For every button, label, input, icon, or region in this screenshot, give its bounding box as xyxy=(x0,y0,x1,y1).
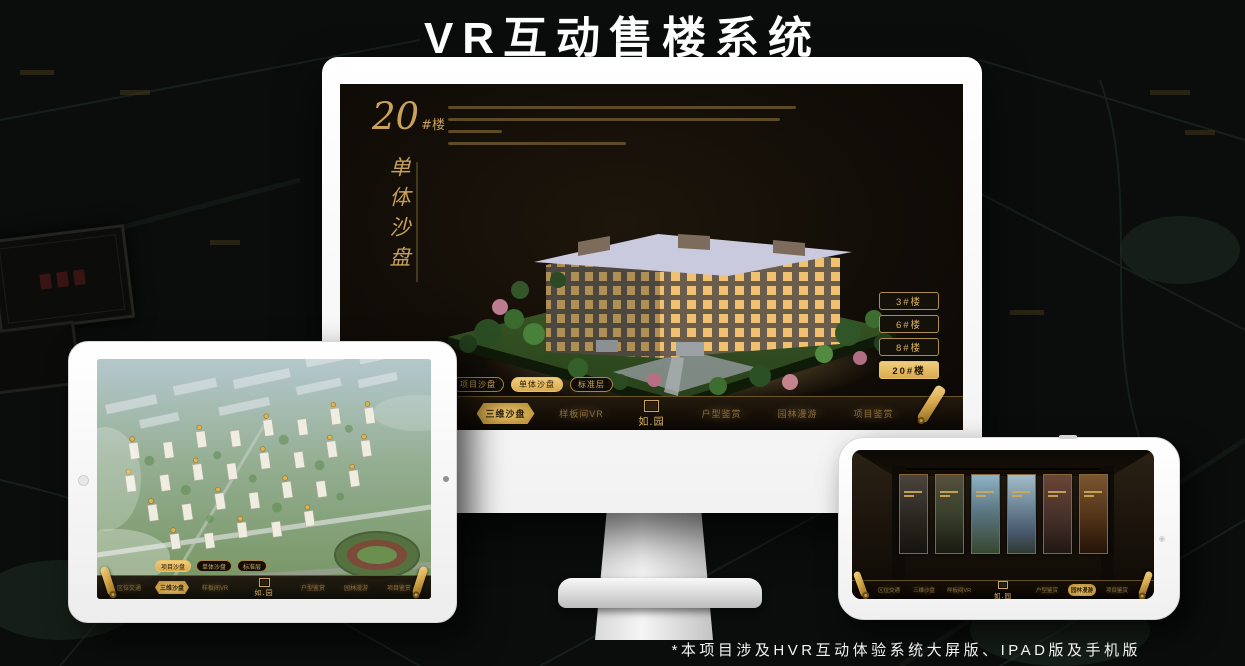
scene-panel-landscape[interactable] xyxy=(971,474,1000,554)
monitor-stand-neck xyxy=(595,510,713,640)
phone-power-button[interactable] xyxy=(1059,435,1077,439)
building-3d-render xyxy=(428,130,910,402)
plaque-seal-marks xyxy=(0,234,125,324)
tablet-subtabs: 项目沙盘 单体沙盘 标准层 xyxy=(155,560,267,572)
phone-bottom-nav: 区位交通 三维沙盘 样板间VR 如.园 户型鉴赏 园林漫游 项目鉴赏 xyxy=(852,580,1154,599)
phone-nav-item-3d-sandtable[interactable]: 三维沙盘 xyxy=(910,584,938,596)
subtab-standard-floor[interactable]: 标准层 xyxy=(570,377,613,392)
monitor-stand-foot xyxy=(558,578,762,608)
scene-panel-garden[interactable] xyxy=(935,474,964,554)
tablet-brand-emblem-icon xyxy=(259,578,270,587)
tablet-screen: 项目沙盘 单体沙盘 标准层 区位交通 三维沙盘 样板间VR 如.园 户型鉴赏 园… xyxy=(97,359,431,599)
scene-panel-building[interactable] xyxy=(1007,474,1036,554)
phone-nav-item-showroom-vr[interactable]: 样板间VR xyxy=(945,584,973,596)
phone-nav-item-location[interactable]: 区位交通 xyxy=(875,584,903,596)
background-plaque xyxy=(0,224,135,334)
tablet-nav-item-project-view[interactable]: 项目鉴赏 xyxy=(382,581,416,594)
phone-camera-icon xyxy=(1159,536,1165,542)
tablet-nav-item-floorplan[interactable]: 户型鉴赏 xyxy=(296,581,330,594)
tablet-nav-item-showroom-vr[interactable]: 样板间VR xyxy=(198,581,232,594)
phone-nav-item-floorplan[interactable]: 户型鉴赏 xyxy=(1033,584,1061,596)
phone-brand-emblem-icon xyxy=(998,581,1008,589)
tablet-bottom-nav: 区位交通 三维沙盘 样板间VR 如.园 户型鉴赏 园林漫游 项目鉴赏 xyxy=(97,575,431,599)
phone-nav-item-garden-roam[interactable]: 园林漫游 xyxy=(1068,584,1096,596)
tablet-nav-item-location[interactable]: 区位交通 xyxy=(112,581,146,594)
scene-panel-autumn[interactable] xyxy=(1043,474,1072,554)
nav-item-showroom-vr[interactable]: 样板间VR xyxy=(553,403,611,424)
scene-gallery xyxy=(852,474,1154,554)
tower-button-group: 3#楼 6#楼 8#楼 20#楼 xyxy=(879,292,939,379)
nav-item-garden-roam[interactable]: 园林漫游 xyxy=(769,403,827,424)
tower-button-3[interactable]: 3#楼 xyxy=(879,292,939,310)
page-title: VR互动售楼系统 xyxy=(0,2,1245,66)
tablet-brand-logo: 如.园 xyxy=(241,578,287,598)
tablet-subtab-project-sandtable[interactable]: 项目沙盘 xyxy=(155,560,191,572)
tower-button-8[interactable]: 8#楼 xyxy=(879,338,939,356)
brand-logo-text: 如.园 xyxy=(638,413,664,428)
footnote-text: *本项目涉及HVR互动体验系统大屏版、IPAD版及手机版 xyxy=(672,639,1141,660)
tablet-brand-logo-text: 如.园 xyxy=(254,588,273,598)
tablet-subtab-standard-floor[interactable]: 标准层 xyxy=(237,560,267,572)
scene-panel-courtyard[interactable] xyxy=(899,474,928,554)
tower-button-20[interactable]: 20#楼 xyxy=(879,361,939,379)
subtab-project-sandtable[interactable]: 项目沙盘 xyxy=(452,377,504,392)
tablet-camera-icon xyxy=(78,475,89,486)
sandtable-subtabs: 项目沙盘 单体沙盘 标准层 xyxy=(452,377,613,392)
phone-brand-logo-text: 如.园 xyxy=(994,590,1012,600)
phone-screen: 区位交通 三维沙盘 样板间VR 如.园 户型鉴赏 园林漫游 项目鉴赏 xyxy=(852,450,1154,599)
decorative-divider xyxy=(416,162,418,282)
brand-logo: 如.园 xyxy=(629,400,675,428)
brand-emblem-icon xyxy=(644,400,659,412)
tablet: 项目沙盘 单体沙盘 标准层 区位交通 三维沙盘 样板间VR 如.园 户型鉴赏 园… xyxy=(68,341,457,623)
phone-nav-item-project-view[interactable]: 项目鉴赏 xyxy=(1103,584,1131,596)
nav-item-project-view[interactable]: 项目鉴赏 xyxy=(845,403,903,424)
building-subtitle-vertical: 单体沙盘 xyxy=(384,156,414,346)
tablet-home-button[interactable] xyxy=(443,476,449,482)
building-number: 20 xyxy=(372,95,419,138)
nav-item-floorplan[interactable]: 户型鉴赏 xyxy=(693,403,751,424)
scene-panel-interior[interactable] xyxy=(1079,474,1108,554)
tablet-nav-item-garden-roam[interactable]: 园林漫游 xyxy=(339,581,373,594)
tablet-subtab-single-sandtable[interactable]: 单体沙盘 xyxy=(196,560,232,572)
smartphone: 区位交通 三维沙盘 样板间VR 如.园 户型鉴赏 园林漫游 项目鉴赏 xyxy=(838,437,1180,620)
phone-brand-logo: 如.园 xyxy=(980,581,1026,600)
tower-button-6[interactable]: 6#楼 xyxy=(879,315,939,333)
tablet-nav-item-3d-sandtable[interactable]: 三维沙盘 xyxy=(155,581,189,594)
nav-item-3d-sandtable[interactable]: 三维沙盘 xyxy=(477,403,535,424)
subtab-single-sandtable[interactable]: 单体沙盘 xyxy=(511,377,563,392)
